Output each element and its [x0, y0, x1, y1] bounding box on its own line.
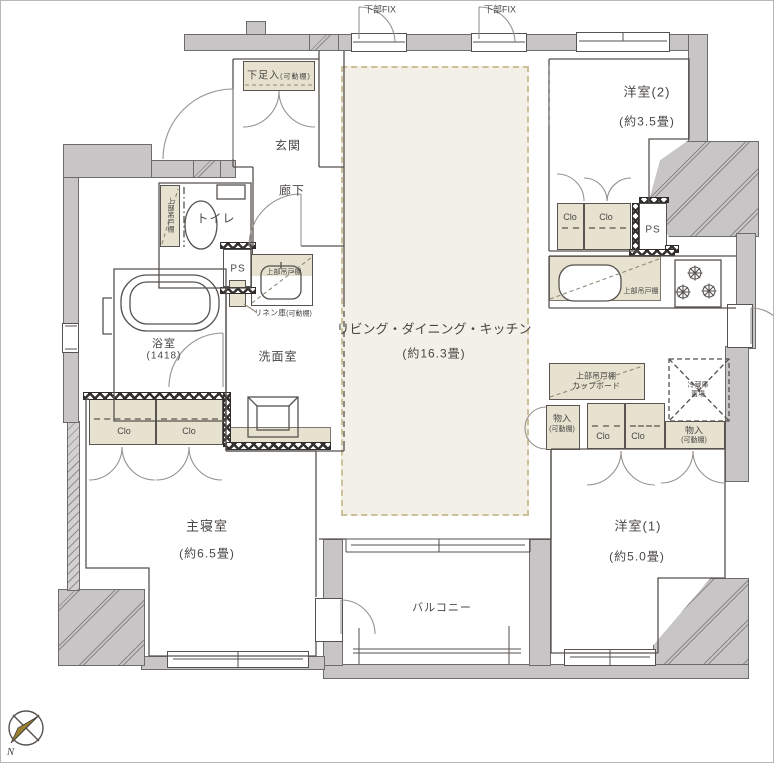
wall-bottom	[323, 664, 749, 679]
window-left-wall	[62, 323, 79, 353]
label-compass-north: N	[7, 746, 15, 758]
window-room2	[576, 32, 670, 52]
window-room1	[564, 649, 656, 666]
burner	[676, 266, 717, 300]
label-bathroom: 浴室	[152, 335, 176, 351]
bedroom-closet-1	[89, 399, 156, 445]
balcony-railing	[353, 626, 521, 664]
room2-closet-2	[584, 203, 631, 250]
porch-wall	[63, 144, 152, 178]
label-bedroom-clo1: Clo	[117, 426, 131, 436]
strip	[632, 203, 639, 251]
wall-hatch-left	[67, 421, 80, 591]
strip	[629, 249, 675, 256]
label-room2-clo2: Clo	[599, 212, 613, 222]
label-fix-2: 下部FIX	[484, 3, 516, 16]
wall	[404, 34, 473, 51]
label-fix-1: 下部FIX	[364, 3, 396, 16]
service-door-frame	[727, 304, 753, 348]
label-room1-clo1: Clo	[596, 431, 610, 441]
label-ldk-size: (約16.3畳)	[402, 345, 465, 362]
label-ps1: PS	[230, 264, 245, 275]
room1-closet-1	[587, 403, 625, 449]
balcony-divider	[529, 539, 551, 666]
label-linen: リネン庫(可動棚)	[254, 308, 312, 319]
wall-corner-sw	[58, 589, 145, 666]
wall-left	[63, 177, 79, 423]
ldk-area	[341, 66, 529, 516]
strip	[223, 392, 231, 447]
strip	[220, 287, 256, 294]
label-storage2-note: (可動棚)	[681, 435, 707, 445]
label-room1-size: (約5.0畳)	[609, 548, 665, 565]
label-toilet-shelf: 上部吊戸棚	[165, 198, 175, 233]
strip	[639, 197, 669, 203]
label-balcony: バルコニー	[412, 599, 472, 615]
label-ps2: PS	[645, 225, 660, 236]
strip	[220, 242, 256, 249]
label-room1: 洋室(1)	[615, 516, 662, 535]
gas-stove	[675, 260, 721, 307]
wall	[688, 34, 708, 144]
wall	[246, 21, 266, 35]
washer-side-counter	[229, 427, 331, 443]
balcony-door-frame	[315, 598, 343, 642]
window-top-1	[351, 33, 407, 52]
label-kitchen-shelf: 上部吊戸棚	[624, 286, 659, 296]
bedroom-closet-2	[156, 399, 223, 445]
compass-icon	[9, 711, 43, 745]
porch-hatch	[193, 160, 221, 178]
label-master-bedroom: 主寝室	[186, 516, 228, 535]
label-toilet: トイレ	[196, 210, 235, 227]
label-room1-clo2: Clo	[631, 431, 645, 441]
label-room2-clo1: Clo	[563, 212, 577, 222]
label-bathroom-size: (1418)	[147, 351, 182, 362]
label-bedroom-clo2: Clo	[182, 426, 196, 436]
label-hallway: 廊下	[279, 182, 305, 199]
window-bedroom	[167, 651, 309, 668]
label-room2: 洋室(2)	[624, 82, 671, 101]
label-shoe-cabinet: 下足入(可動棚)	[247, 67, 311, 82]
label-storage1-note: (可動棚)	[549, 424, 575, 434]
label-master-bedroom-size: (約6.5畳)	[179, 545, 235, 562]
wall	[725, 346, 749, 482]
room1-closet-2	[625, 403, 665, 449]
window-top-2	[471, 33, 527, 52]
label-fridge-2: 置場	[691, 389, 705, 399]
bathtub	[121, 275, 219, 331]
label-entrance: 玄関	[275, 137, 301, 154]
label-vanity-shelf: 上部吊戸棚	[267, 267, 302, 277]
label-storage1: 物入	[553, 412, 571, 425]
strip	[226, 442, 331, 450]
label-cupboard-2: カップボード	[572, 381, 620, 392]
strip	[83, 392, 226, 400]
room2-closet-1	[557, 203, 584, 250]
wall	[523, 34, 578, 51]
floor-plan: 下部FIX 下部FIX 下足入(可動棚) 玄関 廊下 トイレ 上部吊戸棚 PS …	[0, 0, 774, 763]
label-ldk: リビング・ダイニング・キッチン	[336, 319, 531, 338]
wall-corner-se	[653, 578, 749, 668]
wall-hatch	[309, 34, 339, 51]
label-room2-size: (約3.5畳)	[619, 113, 675, 130]
label-washroom: 洗面室	[258, 348, 297, 365]
vanity-counter	[251, 276, 313, 306]
